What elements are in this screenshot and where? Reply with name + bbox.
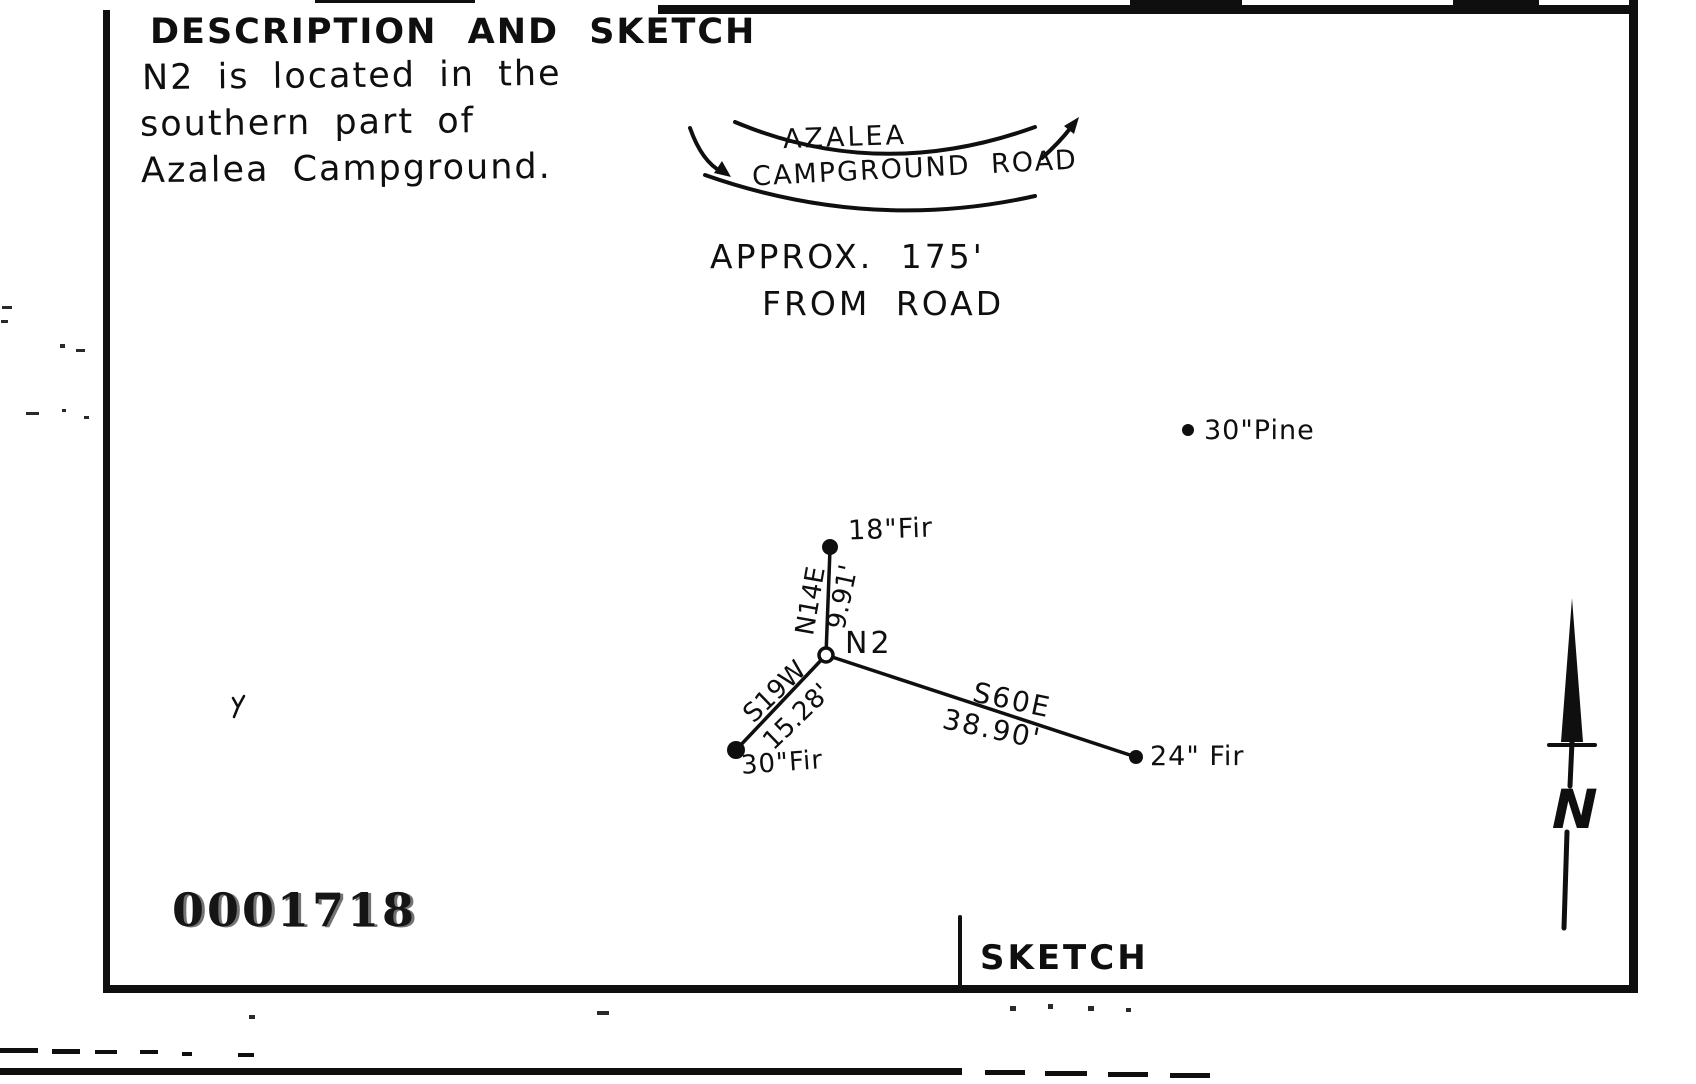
north-arrow-n-label: N [1545, 778, 1604, 841]
description-line-3: Azalea Campground. [141, 147, 552, 191]
north-arrow-head [1561, 598, 1583, 742]
approx-note-line-1: APPROX. 175' [710, 237, 985, 276]
scan-dashed-line-lower-left [0, 1048, 254, 1057]
tree-label-30in-pine: 30"Pine [1204, 415, 1315, 446]
approx-note-line-2: FROM ROAD [762, 284, 1004, 323]
station-marker-n2 [819, 648, 833, 662]
stray-mark-y [233, 696, 244, 717]
footer-sketch-label: SKETCH [980, 938, 1149, 978]
tree-dot-24in-fir [1129, 750, 1143, 764]
stamp-number: 0001718 [172, 883, 417, 937]
tree-label-18in-fir: 18"Fir [847, 513, 933, 547]
scan-specks [1, 306, 1131, 1019]
description-line-1: N2 is located in the [142, 54, 562, 98]
road-name-line-1: AZALEA [782, 120, 907, 155]
tree-dot-30in-pine [1182, 424, 1194, 436]
page-title: DESCRIPTION AND SKETCH [150, 12, 756, 52]
description-line-2: southern part of [140, 101, 475, 145]
scan-page-edge-line [0, 1068, 1210, 1078]
north-arrow-shaft-lower [1564, 832, 1567, 928]
tree-dot-18in-fir [822, 539, 838, 555]
station-label-n2: N2 [845, 626, 893, 661]
tree-label-24in-fir: 24" Fir [1150, 741, 1245, 772]
road-arrow-left [690, 128, 722, 172]
scanned-survey-document: N DESCRIPTION AND SKETCH N2 is located i… [0, 0, 1696, 1084]
